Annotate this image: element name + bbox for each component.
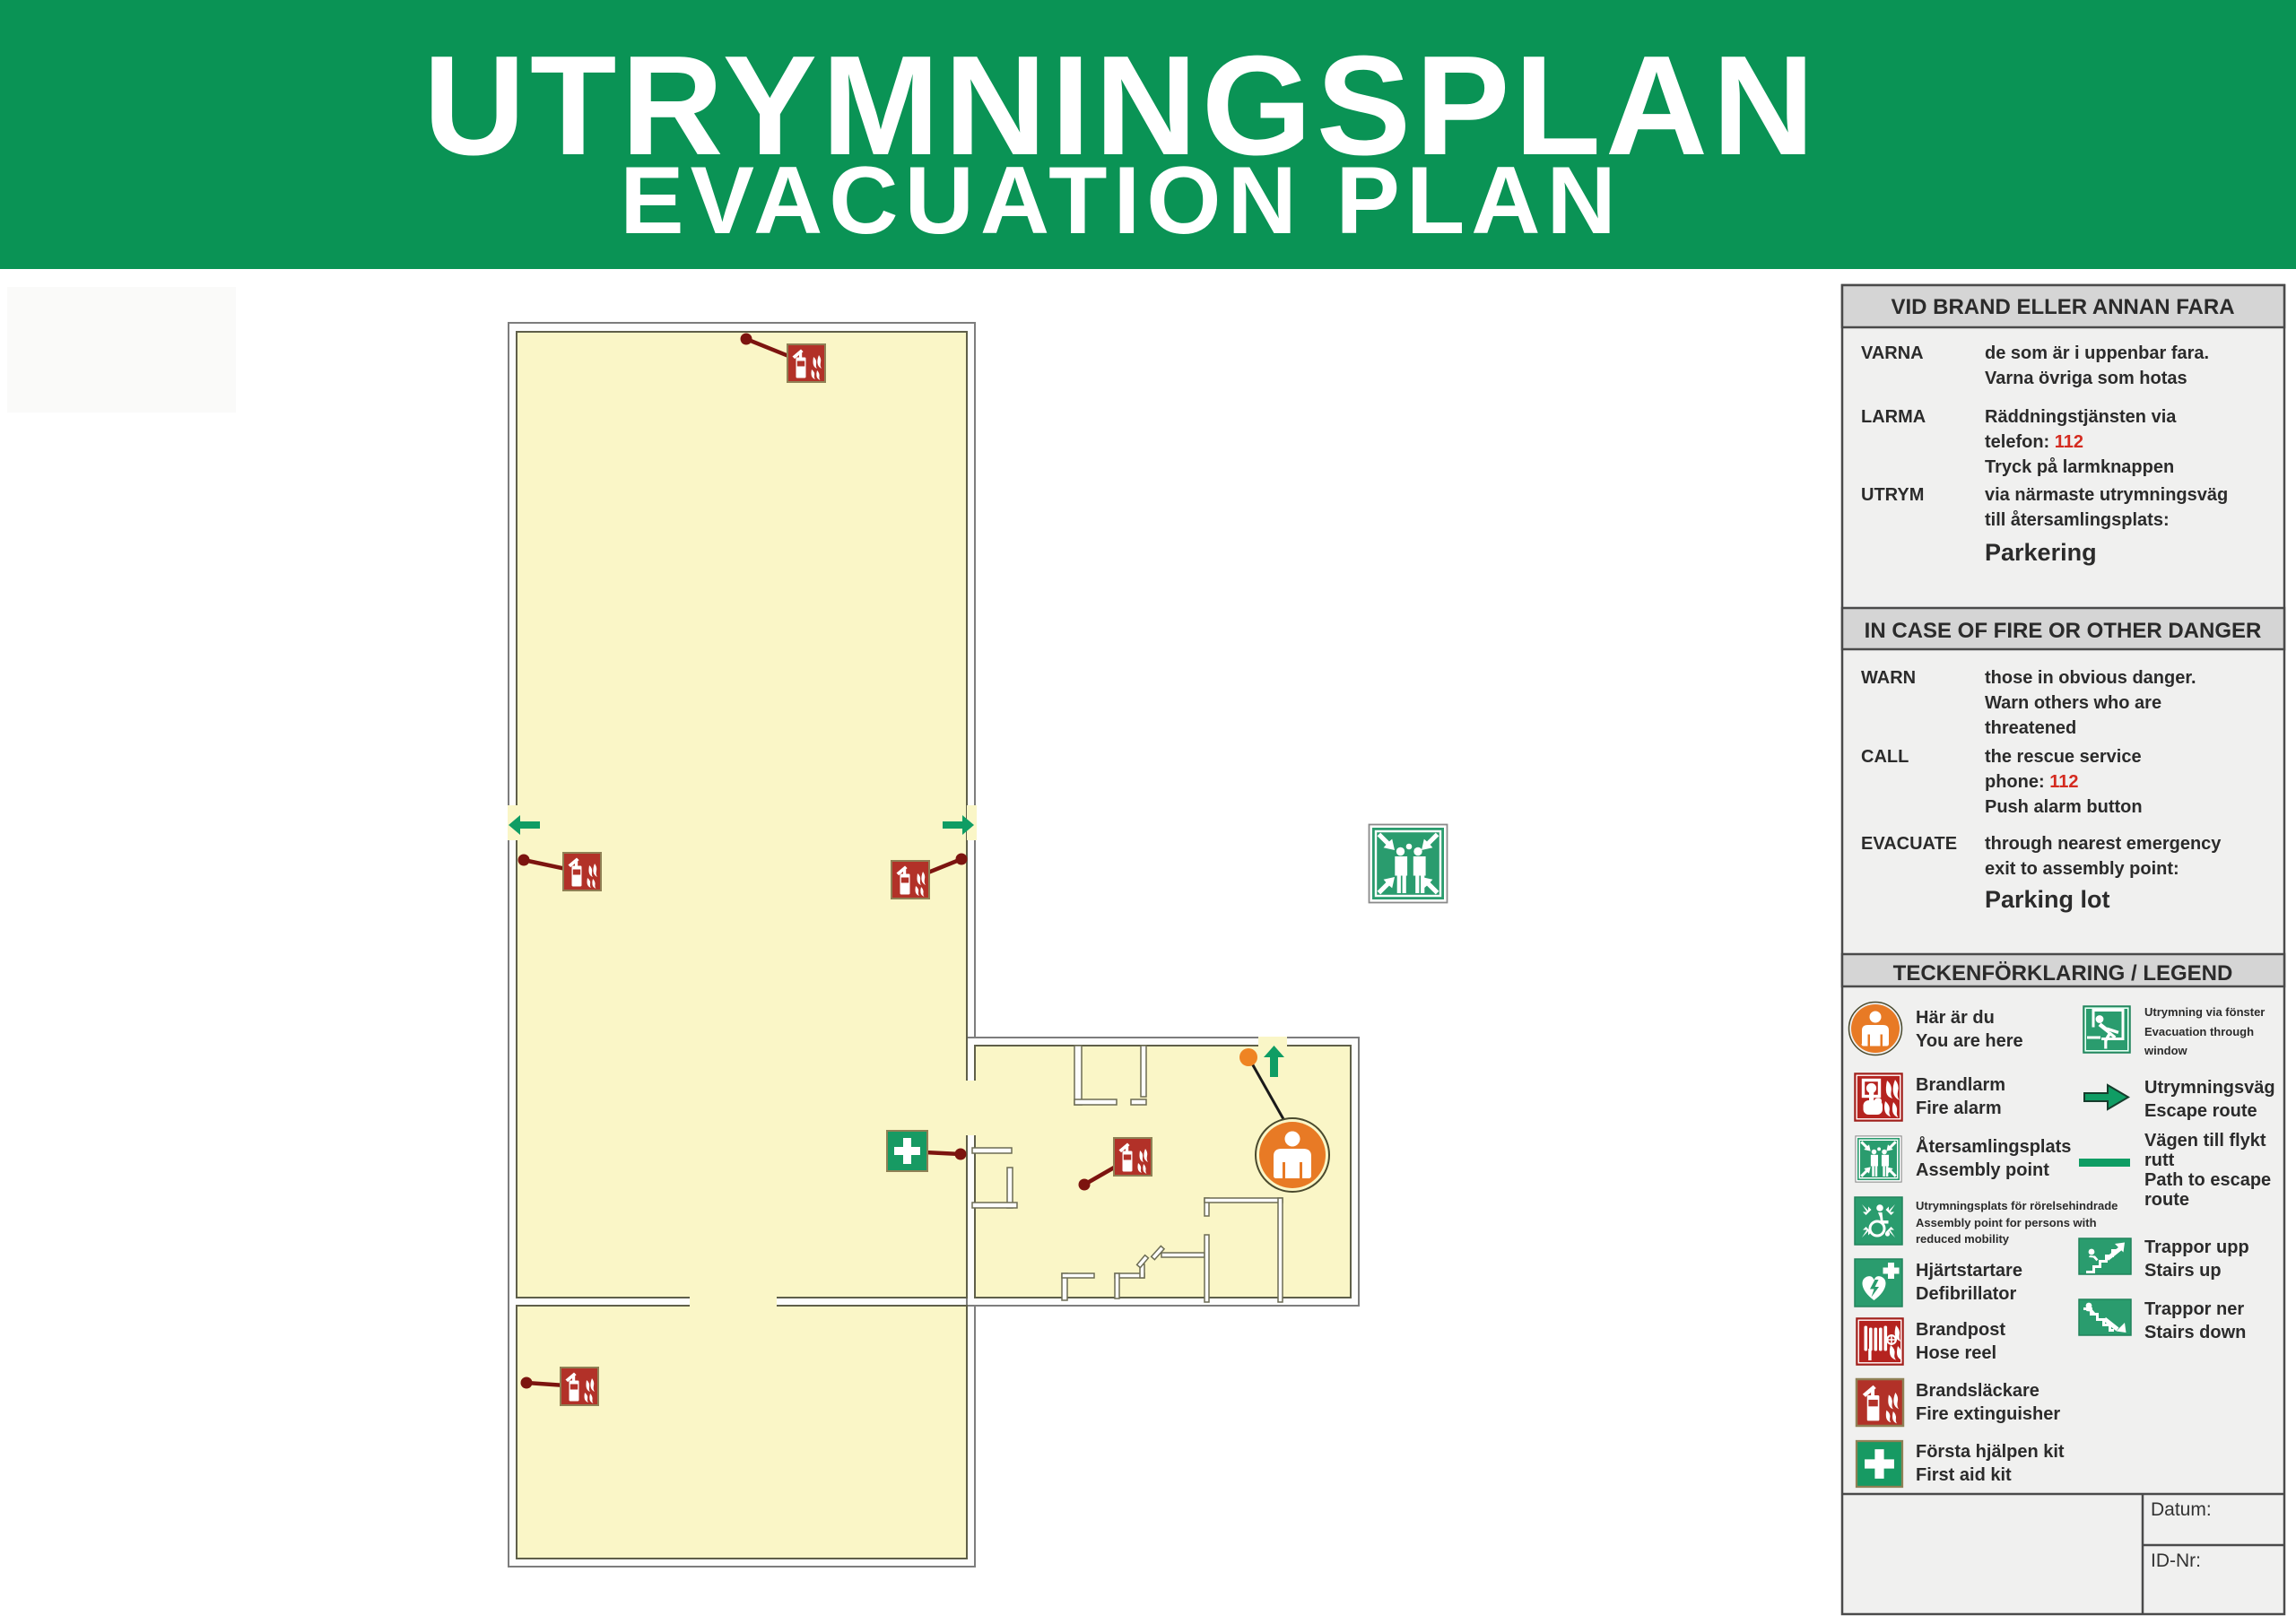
svg-text:exit to assembly point:: exit to assembly point:	[1985, 859, 2179, 879]
svg-text:through nearest emergency: through nearest emergency	[1985, 834, 2222, 854]
svg-text:Stairs down: Stairs down	[2144, 1323, 2246, 1342]
svg-text:reduced mobility: reduced mobility	[1916, 1232, 2010, 1246]
svg-text:Assembly point for persons wit: Assembly point for persons with	[1916, 1216, 2097, 1229]
svg-text:Escape route: Escape route	[2144, 1101, 2257, 1121]
svg-text:Defibrillator: Defibrillator	[1916, 1284, 2016, 1304]
svg-text:ID-Nr:: ID-Nr:	[2151, 1550, 2201, 1571]
svg-text:Hjärtstartare: Hjärtstartare	[1916, 1261, 2022, 1281]
svg-text:telefon: 112: telefon: 112	[1985, 432, 2083, 452]
svg-text:phone: 112: phone: 112	[1985, 772, 2078, 792]
svg-text:EVACUATE: EVACUATE	[1861, 834, 1957, 854]
svg-text:Trappor upp: Trappor upp	[2144, 1238, 2249, 1257]
svg-text:Push alarm button: Push alarm button	[1985, 797, 2143, 817]
svg-text:Warn others who are: Warn others who are	[1985, 693, 2161, 713]
svg-text:Stairs up: Stairs up	[2144, 1261, 2222, 1281]
svg-text:Tryck på larmknappen: Tryck på larmknappen	[1985, 456, 2174, 477]
svg-text:Brandpost: Brandpost	[1916, 1320, 2005, 1340]
svg-text:till återsamlingsplats:: till återsamlingsplats:	[1985, 509, 2170, 530]
svg-text:Räddningstjänsten via: Räddningstjänsten via	[1985, 407, 2177, 427]
svg-text:Parkering: Parkering	[1985, 539, 2097, 566]
svg-text:Brandsläckare: Brandsläckare	[1916, 1381, 2039, 1401]
svg-text:VARNA: VARNA	[1861, 343, 1924, 363]
svg-text:route: route	[2144, 1190, 2189, 1210]
svg-text:TECKENFÖRKLARING / LEGEND: TECKENFÖRKLARING / LEGEND	[1893, 961, 2233, 986]
svg-text:Fire extinguisher: Fire extinguisher	[1916, 1404, 2060, 1424]
svg-text:those in obvious danger.: those in obvious danger.	[1985, 668, 2196, 688]
svg-text:Brandlarm: Brandlarm	[1916, 1075, 2005, 1095]
svg-text:Här är du: Här är du	[1916, 1008, 1995, 1028]
svg-text:Trappor ner: Trappor ner	[2144, 1299, 2244, 1319]
svg-text:UTRYM: UTRYM	[1861, 485, 1924, 505]
svg-text:Datum:: Datum:	[2151, 1499, 2212, 1520]
svg-text:Assembly point: Assembly point	[1916, 1160, 2049, 1180]
svg-text:Fire alarm: Fire alarm	[1916, 1099, 2002, 1118]
svg-text:Utrymningsplats för rörelsehin: Utrymningsplats för rörelsehindrade	[1916, 1199, 2118, 1212]
svg-text:LARMA: LARMA	[1861, 407, 1926, 427]
svg-text:Vägen till flykt: Vägen till flykt	[2144, 1131, 2266, 1151]
svg-text:the rescue service: the rescue service	[1985, 747, 2142, 767]
svg-text:rutt: rutt	[2144, 1151, 2175, 1170]
svg-text:Parking lot: Parking lot	[1985, 886, 2110, 913]
svg-text:Utrymning via fönster: Utrymning via fönster	[2144, 1005, 2265, 1019]
svg-text:Evacuation through: Evacuation through	[2144, 1025, 2254, 1038]
svg-text:Utrymningsväg: Utrymningsväg	[2144, 1078, 2275, 1098]
svg-text:window: window	[2144, 1044, 2188, 1057]
svg-text:Path to escape: Path to escape	[2144, 1170, 2271, 1190]
svg-text:IN CASE OF FIRE OR OTHER DANGE: IN CASE OF FIRE OR OTHER DANGER	[1865, 619, 2262, 643]
svg-text:via närmaste utrymningsväg: via närmaste utrymningsväg	[1985, 485, 2228, 505]
svg-text:WARN: WARN	[1861, 668, 1916, 688]
svg-text:Varna övriga som hotas: Varna övriga som hotas	[1985, 369, 2187, 388]
svg-text:CALL: CALL	[1861, 747, 1909, 767]
svg-text:Första hjälpen kit: Första hjälpen kit	[1916, 1442, 2065, 1462]
svg-text:You are here: You are here	[1916, 1031, 2023, 1051]
svg-text:Återsamlingsplats: Återsamlingsplats	[1916, 1135, 2071, 1157]
svg-text:de som är i uppenbar fara.: de som är i uppenbar fara.	[1985, 343, 2209, 363]
svg-text:threatened: threatened	[1985, 718, 2076, 738]
svg-text:First aid kit: First aid kit	[1916, 1465, 2012, 1485]
svg-text:VID BRAND ELLER ANNAN FARA: VID BRAND ELLER ANNAN FARA	[1891, 295, 2234, 319]
svg-text:Hose reel: Hose reel	[1916, 1343, 1996, 1363]
